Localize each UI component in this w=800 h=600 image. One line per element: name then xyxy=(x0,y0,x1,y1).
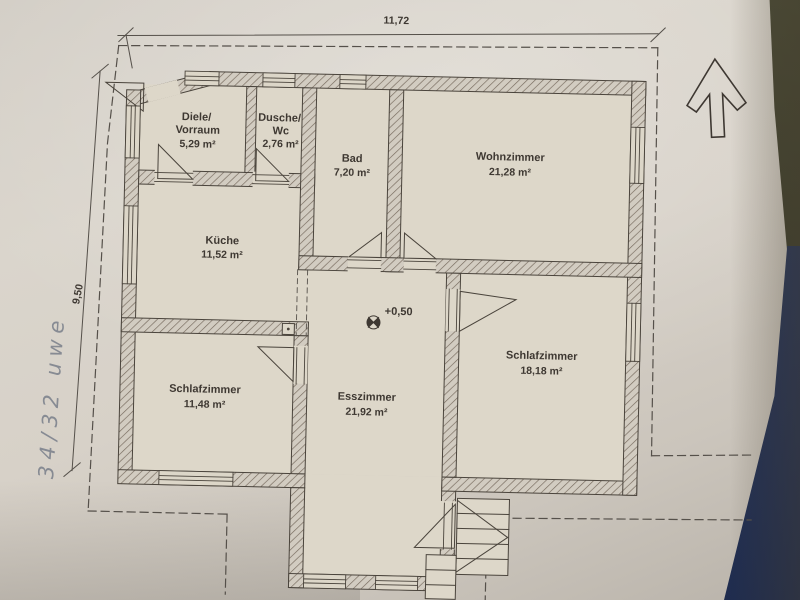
room-label-bad: Bad xyxy=(342,153,363,165)
room-label-schlafzimmer-right: Schlafzimmer xyxy=(506,349,578,363)
room-label-esszimmer: Esszimmer xyxy=(338,391,397,404)
north-arrow-icon xyxy=(685,58,748,139)
chimney-flue xyxy=(282,323,294,334)
room-label-schlafzimmer-left: Schlafzimmer xyxy=(169,383,241,397)
room-area-esszimmer: 21,92 m² xyxy=(345,406,388,419)
room-area-schlafzimmer-left: 11,48 m² xyxy=(184,398,226,411)
room-label-wohnzimmer: Wohnzimmer xyxy=(476,151,546,165)
room-label-kueche: Küche xyxy=(205,235,239,248)
room-area-diele: 5,29 m² xyxy=(179,138,216,151)
room-area-schlafzimmer-right: 18,18 m² xyxy=(520,365,563,378)
room-area-wohnzimmer: 21,28 m² xyxy=(489,166,532,179)
floorplan-svg: 11,72 9,50 +0,50 xyxy=(0,0,800,600)
dimension-top-label: 11,72 xyxy=(383,15,409,28)
photo-of-floor-plan: 34/32 uwe xyxy=(0,0,800,600)
dimension-left xyxy=(64,64,108,478)
room-label-diele: Diele/ Vorraum xyxy=(175,111,220,137)
level-label: +0,50 xyxy=(385,306,413,319)
room-area-kueche: 11,52 m² xyxy=(201,248,243,261)
room-area-dusche-wc: 2,76 m² xyxy=(262,138,299,151)
room-area-bad: 7,20 m² xyxy=(334,166,371,179)
